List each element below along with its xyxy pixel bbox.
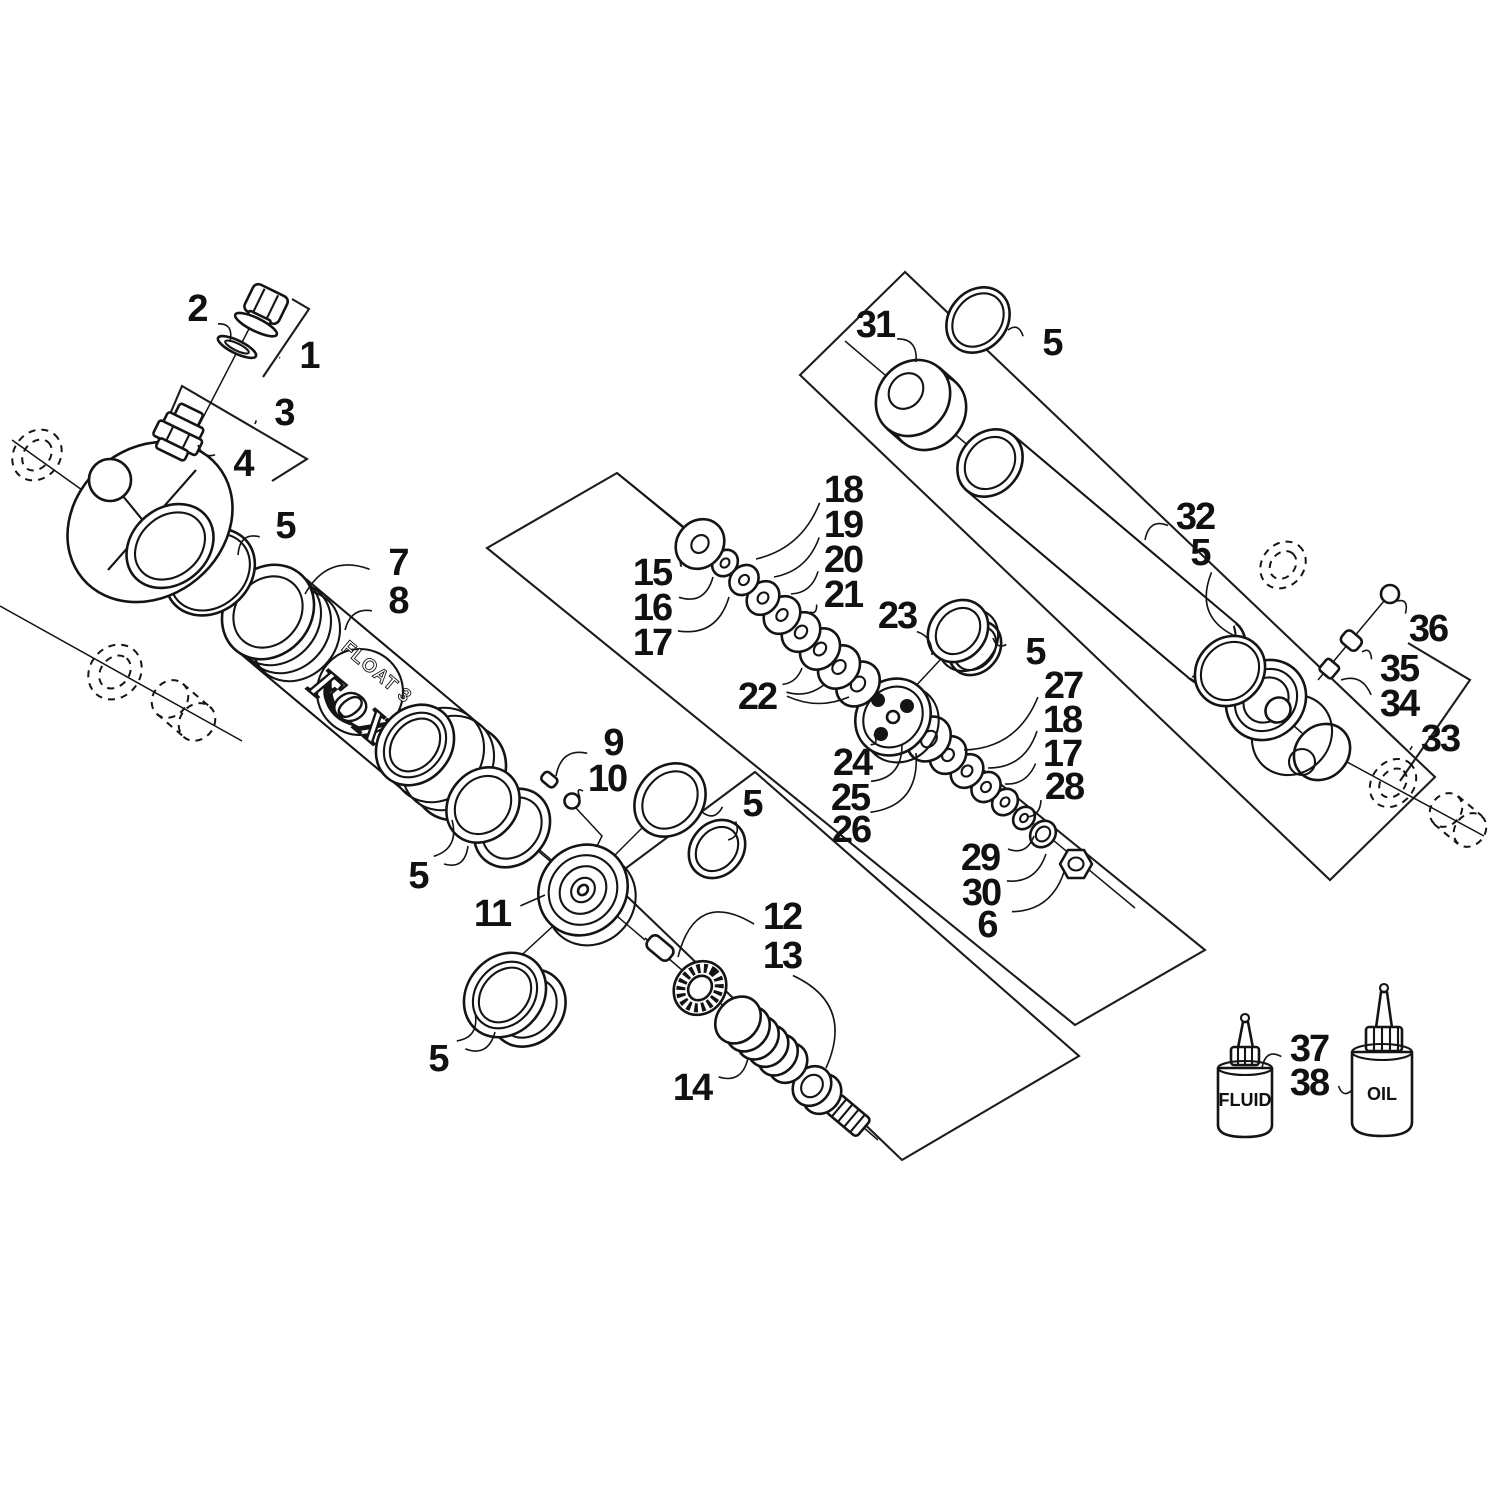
dashed-seal-ring [1251,532,1315,597]
callout-23: 23 [878,595,917,637]
leader-line [1008,327,1023,336]
leader-line [719,1058,748,1078]
shaft-nut [1060,850,1092,878]
callout-26: 26 [832,809,871,851]
callout-28: 28 [1045,766,1084,808]
callout-38: 38 [1290,1062,1329,1104]
leader-line [1145,524,1168,540]
callout-36: 36 [1409,608,1448,650]
callout-34: 34 [1380,683,1420,725]
callout-5: 5 [1190,532,1211,574]
oil-bottle: OIL [1352,984,1412,1136]
leader-line [678,597,729,632]
callout-21: 21 [824,574,864,616]
shaft-bellows-spring [706,987,815,1090]
leader-line [1397,601,1406,614]
leader-line [680,562,681,566]
fluid-bottle: FLUID [1218,1014,1272,1137]
leader-line [679,577,713,599]
leader-line [774,537,819,577]
callout-5: 5 [408,855,429,897]
callout-13: 13 [763,935,802,977]
leader-line [964,697,1038,750]
dashed-mount-bushing-top-left [2,420,72,491]
callout-3: 3 [274,392,294,434]
callout-14: 14 [673,1067,713,1109]
leader-line [556,752,587,776]
callout-10: 10 [588,758,627,800]
leader-line [1410,746,1412,750]
leader-line [791,571,818,594]
check-ball [1381,585,1399,603]
callout-5: 5 [275,505,296,547]
callout-5: 5 [1042,322,1063,364]
leader-line [810,605,817,613]
air-valve-cap [232,280,293,340]
valve-pin [1339,628,1364,652]
parts-diagram-page: FLOAT 3 FOX [0,0,1500,1500]
callout-12: 12 [763,896,802,938]
callout-4: 4 [233,443,254,485]
dashed-mount-bushing-lower-left [77,634,223,749]
callout-31: 31 [856,304,896,346]
leader-line [756,503,820,559]
callout-2: 2 [187,288,207,330]
exploded-parts-diagram: FLOAT 3 FOX [0,0,1500,1500]
leader-line [1005,764,1036,785]
leader-line [578,790,583,798]
dashed-mount-bushing-right [1360,750,1493,854]
leader-line [255,420,256,424]
leader-line [678,912,754,957]
leader-line [279,357,280,358]
leader-line [1012,872,1064,912]
leader-line [783,668,803,684]
callout-7: 7 [388,542,408,584]
callout-11: 11 [474,893,512,935]
leader-line [1339,1086,1353,1094]
leader-line [1362,650,1372,659]
check-ball [565,794,580,809]
callout-5: 5 [428,1038,449,1080]
callout-33: 33 [1421,718,1460,760]
leader-line [988,731,1037,768]
callout-8: 8 [388,580,408,622]
o-ring [933,275,1022,366]
oil-bottle-label: OIL [1367,1084,1397,1104]
callout-22: 22 [738,676,777,718]
callout-17: 17 [633,622,672,664]
leader-line [787,684,826,694]
callout-6: 6 [977,904,997,946]
valve-seal-washer [215,332,258,362]
leader-line [897,339,916,362]
callout-1: 1 [299,335,320,377]
leader-line [1007,854,1046,881]
fluid-bottle-label: FLUID [1219,1090,1272,1110]
callout-5: 5 [742,783,763,825]
